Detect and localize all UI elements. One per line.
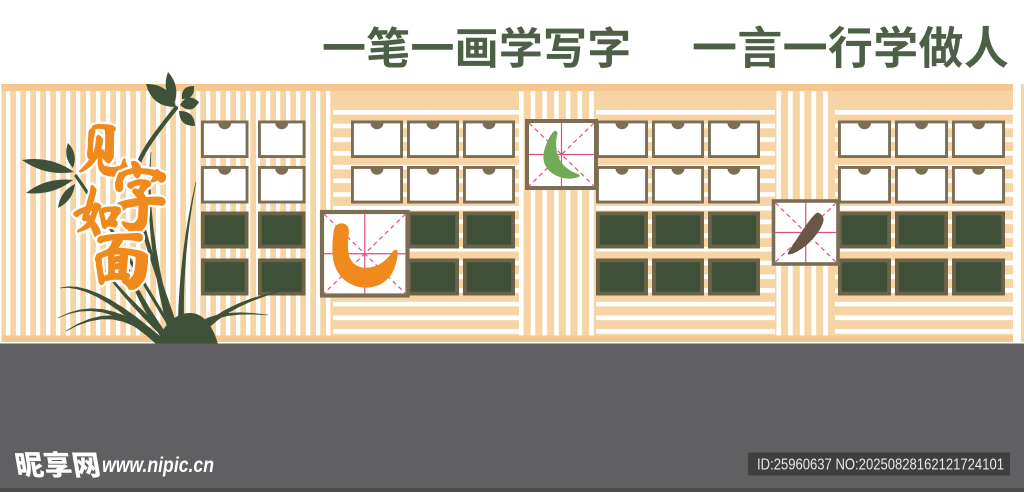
svg-text:ID:25960637 NO:202508281621217: ID:25960637 NO:20250828162121724101 [757, 457, 1004, 474]
svg-text:www.nipic.cn: www.nipic.cn [102, 454, 214, 477]
